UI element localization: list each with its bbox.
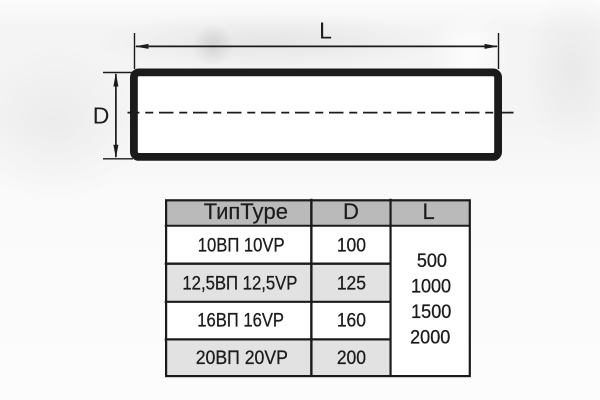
svg-text:20ВП 20VP: 20ВП 20VP bbox=[196, 346, 288, 368]
svg-text:L: L bbox=[422, 199, 434, 224]
svg-text:1500: 1500 bbox=[411, 301, 451, 323]
svg-text:16ВП 16VP: 16ВП 16VP bbox=[197, 310, 284, 331]
svg-text:125: 125 bbox=[337, 272, 366, 294]
svg-text:100: 100 bbox=[337, 234, 366, 256]
svg-text:160: 160 bbox=[337, 309, 366, 331]
svg-text:2000: 2000 bbox=[410, 326, 450, 348]
svg-text:10ВП 10VP: 10ВП 10VP bbox=[198, 234, 285, 255]
svg-text:200: 200 bbox=[337, 346, 366, 368]
svg-text:D: D bbox=[343, 199, 359, 224]
svg-text:1000: 1000 bbox=[411, 275, 451, 297]
svg-text:500: 500 bbox=[417, 250, 447, 272]
svg-text:L: L bbox=[319, 18, 332, 44]
svg-text:12,5ВП 12,5VP: 12,5ВП 12,5VP bbox=[182, 273, 297, 294]
svg-text:ТипType: ТипType bbox=[204, 199, 288, 224]
svg-text:D: D bbox=[93, 103, 110, 129]
